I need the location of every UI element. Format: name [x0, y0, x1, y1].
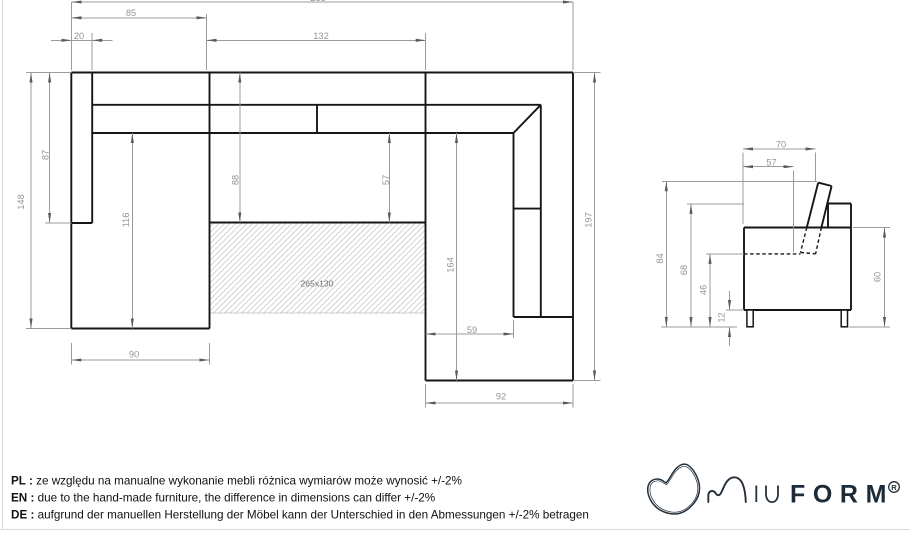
svg-text:12: 12: [717, 312, 727, 322]
svg-text:88: 88: [231, 175, 241, 185]
svg-text:46: 46: [699, 285, 709, 295]
svg-text:DE : aufgrund der manuellen He: DE : aufgrund der manuellen Herstellung …: [11, 509, 589, 522]
svg-text:68: 68: [679, 265, 689, 275]
svg-text:148: 148: [16, 194, 26, 210]
svg-text:57: 57: [381, 175, 391, 185]
svg-text:265x130: 265x130: [301, 279, 334, 289]
svg-text:20: 20: [74, 31, 84, 41]
svg-text:197: 197: [584, 212, 594, 228]
svg-text:265: 265: [310, 0, 326, 3]
svg-text:116: 116: [121, 213, 131, 228]
svg-text:EN : due to the hand-made furn: EN : due to the hand-made furniture, the…: [11, 492, 435, 505]
svg-text:87: 87: [41, 150, 51, 160]
svg-text:92: 92: [496, 392, 506, 402]
svg-text:164: 164: [446, 257, 456, 273]
svg-text:70: 70: [776, 139, 786, 149]
svg-text:84: 84: [655, 253, 665, 263]
svg-text:R: R: [891, 483, 897, 492]
svg-text:PL : ze względu na manualne wy: PL : ze względu na manualne wykonanie me…: [11, 475, 462, 488]
svg-text:60: 60: [873, 272, 883, 282]
svg-text:57: 57: [766, 158, 776, 168]
svg-text:FORM: FORM: [790, 481, 894, 509]
svg-text:132: 132: [313, 31, 329, 41]
svg-text:85: 85: [126, 8, 136, 18]
svg-text:90: 90: [129, 350, 139, 360]
svg-text:59: 59: [467, 325, 477, 335]
